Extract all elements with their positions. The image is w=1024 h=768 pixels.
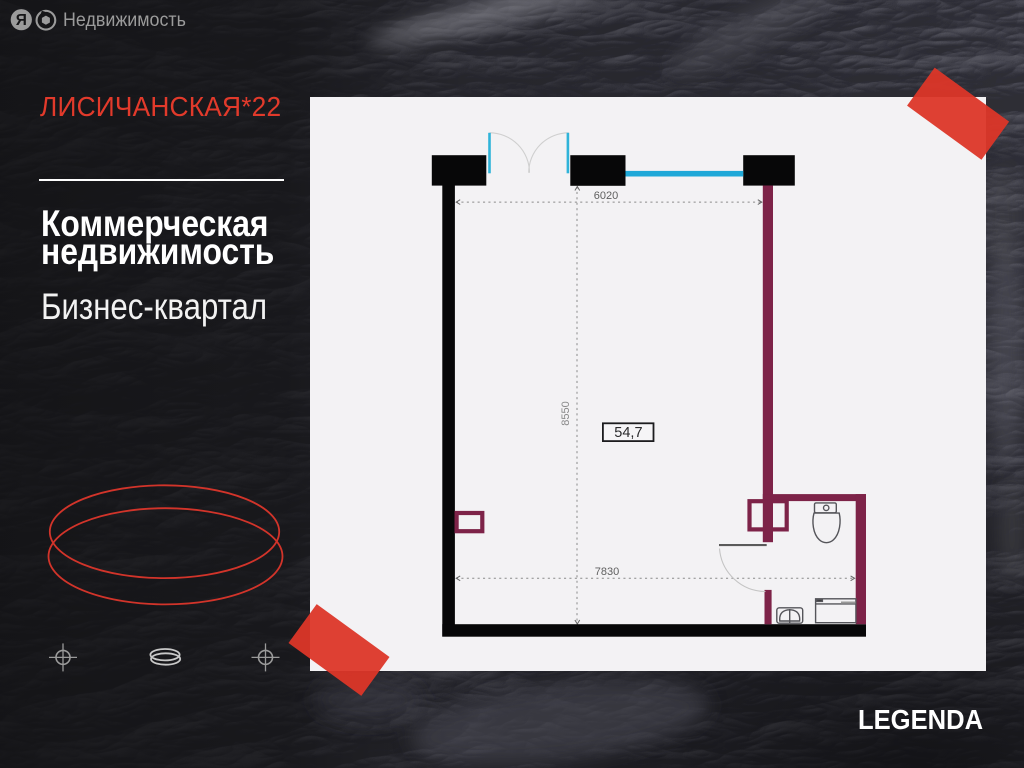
svg-text:6020: 6020 [594,190,618,202]
svg-text:54,7: 54,7 [614,425,642,441]
svg-text:8550: 8550 [560,401,572,425]
svg-text:Я: Я [16,12,27,29]
svg-text:7830: 7830 [595,565,619,577]
